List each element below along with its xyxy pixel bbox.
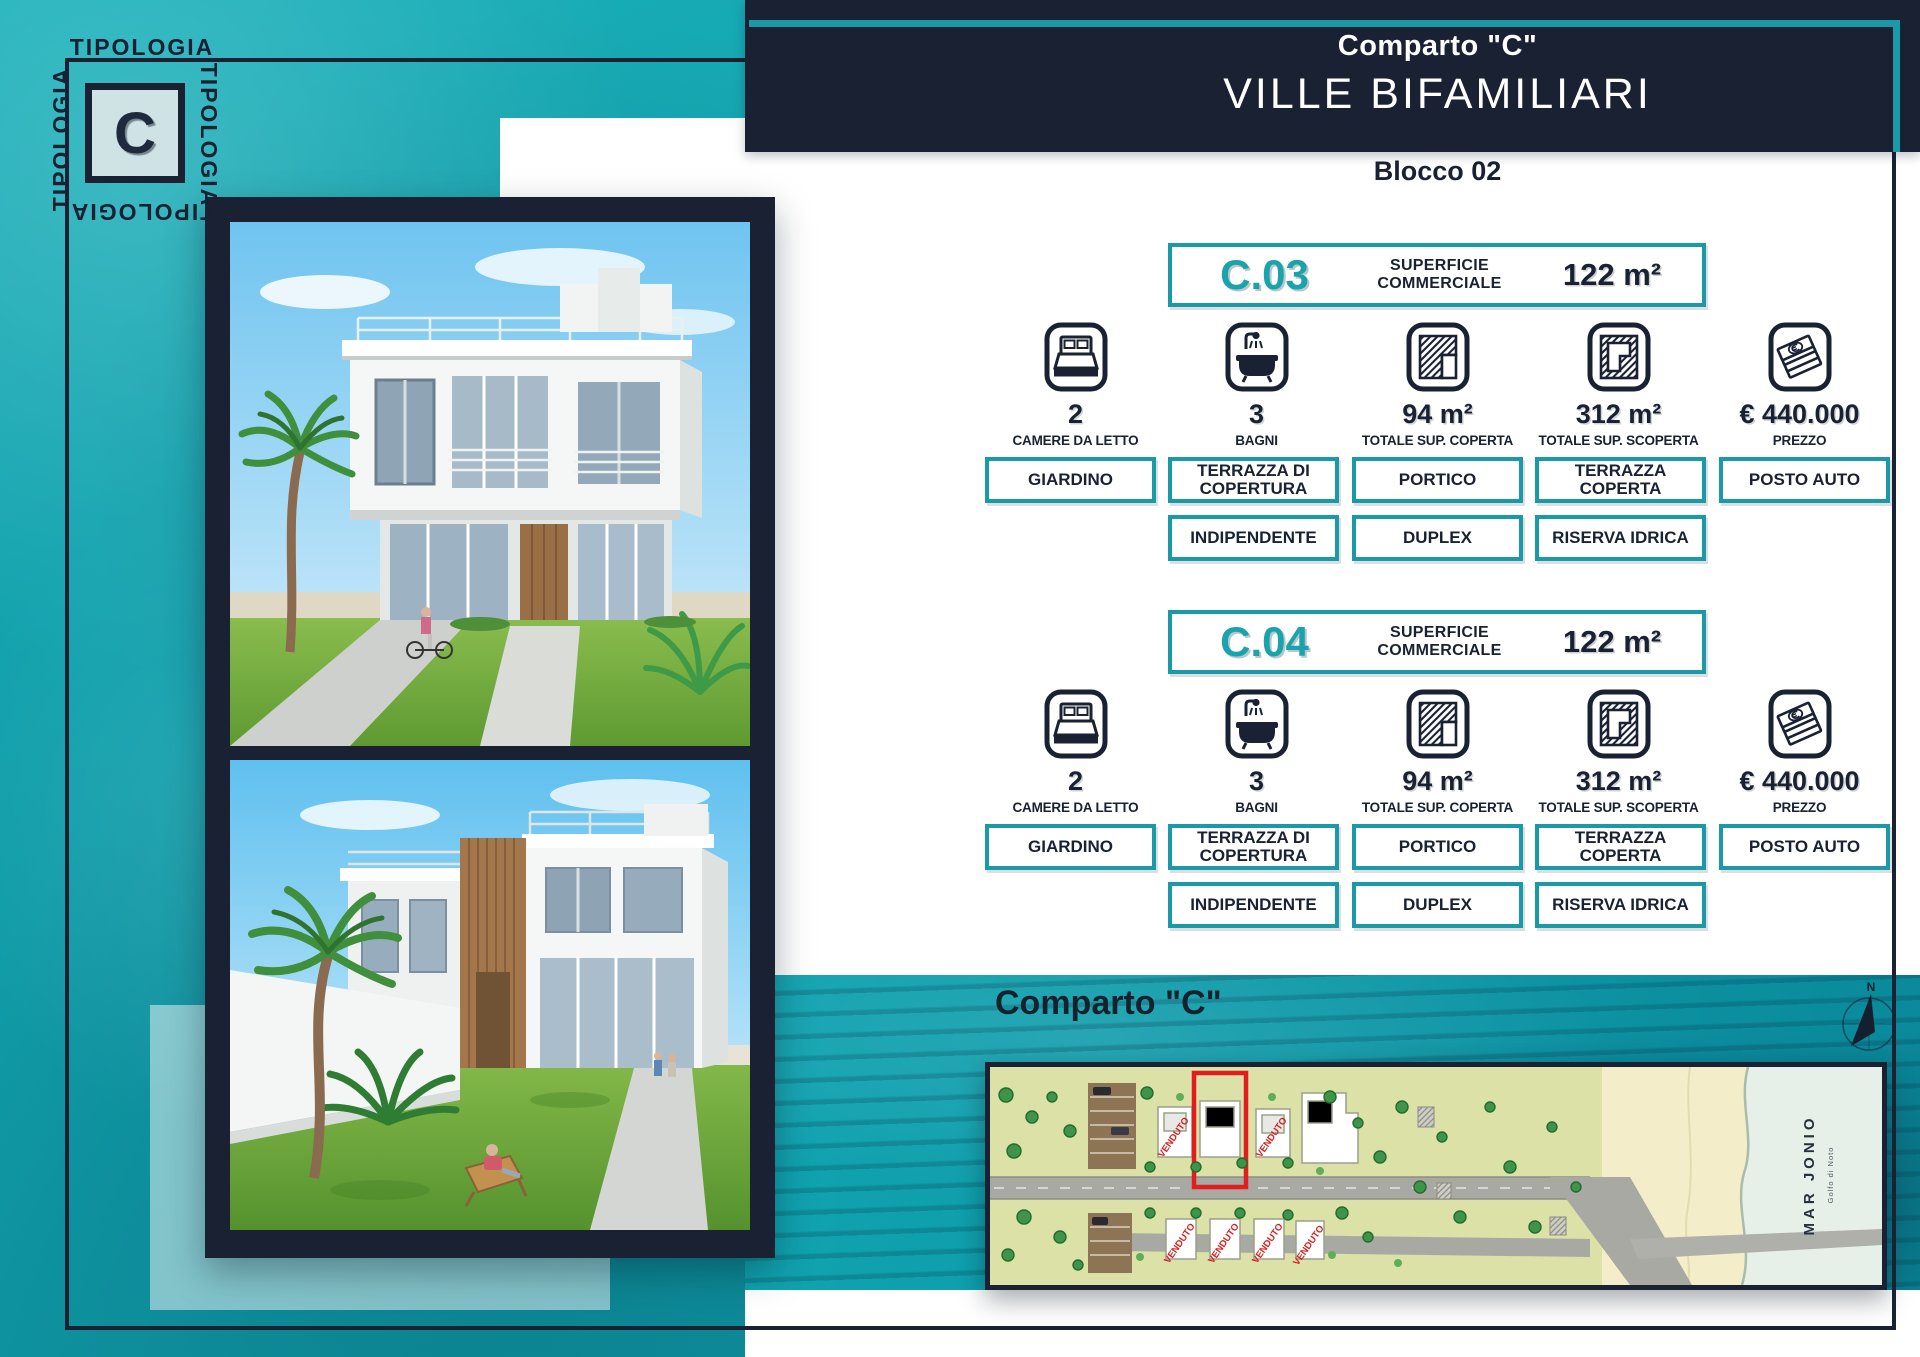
logo-word-bottom: TIPOLOGIA xyxy=(61,198,223,225)
unit-code: C.04 xyxy=(1172,618,1357,666)
feature-badge-terrazza-coperta: TERRAZZA COPERTA xyxy=(1535,824,1706,870)
stat-value: 2 xyxy=(985,399,1166,430)
brochure-page: TIPOLOGIA TIPOLOGIA TIPOLOGIA TIPOLOGIA … xyxy=(0,0,1920,1357)
stat-value: 94 m² xyxy=(1347,766,1528,797)
page-title: VILLE BIFAMILIARI xyxy=(985,70,1890,119)
stat-label: BAGNI xyxy=(1166,800,1347,815)
price-icon xyxy=(1768,322,1832,392)
logo-letter: C xyxy=(114,100,156,167)
siteplan-heading: Comparto "C" xyxy=(995,984,1222,1023)
stat-label: BAGNI xyxy=(1166,433,1347,448)
parking-area-bottom xyxy=(1088,1213,1132,1273)
villa-render-1-illustration xyxy=(230,222,750,746)
stat-label: TOTALE SUP. SCOPERTA xyxy=(1528,800,1709,815)
stat-value: 312 m² xyxy=(1528,399,1709,430)
tipologia-logo: TIPOLOGIA TIPOLOGIA TIPOLOGIA TIPOLOGIA … xyxy=(36,28,251,233)
unit-area-label: SUPERFICIE COMMERCIALE xyxy=(1357,624,1522,661)
sea-label: MAR JONIO xyxy=(1801,1114,1818,1235)
svg-text:N: N xyxy=(1867,980,1876,994)
villa-render-1 xyxy=(230,222,750,746)
stat-label: TOTALE SUP. COPERTA xyxy=(1347,800,1528,815)
stat-label: PREZZO xyxy=(1709,800,1890,815)
stat-bathrooms: 3 BAGNI xyxy=(1166,322,1347,448)
stat-uncovered-surface: 312 m² TOTALE SUP. SCOPERTA xyxy=(1528,322,1709,448)
parking-area-top xyxy=(1088,1083,1136,1169)
bed-icon xyxy=(1044,689,1108,759)
stat-bedrooms: 2 CAMERE DA LETTO xyxy=(985,322,1166,448)
feature-badge-portico: PORTICO xyxy=(1352,457,1523,503)
unit-header: C.03 SUPERFICIE COMMERCIALE 122 m² xyxy=(1168,243,1706,307)
block-title: Blocco 02 xyxy=(985,156,1890,187)
header-subtitle: Comparto "C" xyxy=(985,30,1890,63)
price-icon xyxy=(1768,689,1832,759)
bed-icon xyxy=(1044,322,1108,392)
feature-badge-duplex: DUPLEX xyxy=(1352,882,1523,928)
stat-value: 3 xyxy=(1166,766,1347,797)
stat-label: CAMERE DA LETTO xyxy=(985,800,1166,815)
feature-badge-posto-auto: POSTO AUTO xyxy=(1719,824,1890,870)
sea-sublabel: Golfo di Noto xyxy=(1826,1147,1835,1204)
stat-bedrooms: 2 CAMERE DA LETTO xyxy=(985,689,1166,815)
logo-word-left: TIPOLOGIA xyxy=(48,58,75,220)
page-header: Comparto "C" VILLE BIFAMILIARI xyxy=(745,0,1920,152)
stat-value: 3 xyxy=(1166,399,1347,430)
unit-area-value: 122 m² xyxy=(1522,624,1702,660)
stat-value: 2 xyxy=(985,766,1166,797)
bath-icon xyxy=(1225,689,1289,759)
unit-header: C.04 SUPERFICIE COMMERCIALE 122 m² xyxy=(1168,610,1706,674)
stat-value: 312 m² xyxy=(1528,766,1709,797)
uncovered-surface-icon xyxy=(1587,689,1651,759)
stat-price: € 440.000 PREZZO xyxy=(1709,322,1890,448)
stat-label: CAMERE DA LETTO xyxy=(985,433,1166,448)
unit-card-c04: C.04 SUPERFICIE COMMERCIALE 122 m² 2 CAM… xyxy=(985,610,1890,940)
feature-badge-terrazza-di-copertura: TERRAZZA DI COPERTURA xyxy=(1168,457,1339,503)
villa-photo-frame xyxy=(205,197,775,1258)
stat-covered-surface: 94 m² TOTALE SUP. COPERTA xyxy=(1347,322,1528,448)
uncovered-surface-icon xyxy=(1587,322,1651,392)
logo-word-right: TIPOLOGIA xyxy=(195,54,222,216)
feature-badge-duplex: DUPLEX xyxy=(1352,515,1523,561)
feature-badge-posto-auto: POSTO AUTO xyxy=(1719,457,1890,503)
stat-value: € 440.000 xyxy=(1709,766,1890,797)
stat-price: € 440.000 PREZZO xyxy=(1709,689,1890,815)
villa-render-2-illustration xyxy=(230,760,750,1230)
feature-badge-indipendente: INDIPENDENTE xyxy=(1168,882,1339,928)
unit-area-label: SUPERFICIE COMMERCIALE xyxy=(1357,257,1522,294)
villa-render-2 xyxy=(230,760,750,1230)
unit-code: C.03 xyxy=(1172,251,1357,299)
stat-uncovered-surface: 312 m² TOTALE SUP. SCOPERTA xyxy=(1528,689,1709,815)
stat-bathrooms: 3 BAGNI xyxy=(1166,689,1347,815)
feature-badge-riserva-idrica: RISERVA IDRICA xyxy=(1535,515,1706,561)
bath-icon xyxy=(1225,322,1289,392)
feature-badge-indipendente: INDIPENDENTE xyxy=(1168,515,1339,561)
feature-badge-terrazza-di-copertura: TERRAZZA DI COPERTURA xyxy=(1168,824,1339,870)
logo-box: C xyxy=(85,83,185,183)
covered-surface-icon xyxy=(1406,322,1470,392)
siteplan-map: VENDUTO VENDUTO VENDUTO VENDUTO VENDUTO … xyxy=(985,1062,1887,1290)
siteplan-map-drawing: VENDUTO VENDUTO VENDUTO VENDUTO VENDUTO … xyxy=(990,1067,1882,1285)
stat-label: TOTALE SUP. COPERTA xyxy=(1347,433,1528,448)
stat-label: PREZZO xyxy=(1709,433,1890,448)
feature-badge-terrazza-coperta: TERRAZZA COPERTA xyxy=(1535,457,1706,503)
feature-badge-giardino: GIARDINO xyxy=(985,824,1156,870)
stat-label: TOTALE SUP. SCOPERTA xyxy=(1528,433,1709,448)
covered-surface-icon xyxy=(1406,689,1470,759)
unit-card-c03: C.03 SUPERFICIE COMMERCIALE 122 m² 2 CAM… xyxy=(985,243,1890,573)
stat-value: 94 m² xyxy=(1347,399,1528,430)
stat-covered-surface: 94 m² TOTALE SUP. COPERTA xyxy=(1347,689,1528,815)
feature-badge-portico: PORTICO xyxy=(1352,824,1523,870)
unit-area-value: 122 m² xyxy=(1522,257,1702,293)
feature-badge-giardino: GIARDINO xyxy=(985,457,1156,503)
feature-badge-riserva-idrica: RISERVA IDRICA xyxy=(1535,882,1706,928)
stat-value: € 440.000 xyxy=(1709,399,1890,430)
compass-icon: N xyxy=(1833,980,1905,1060)
